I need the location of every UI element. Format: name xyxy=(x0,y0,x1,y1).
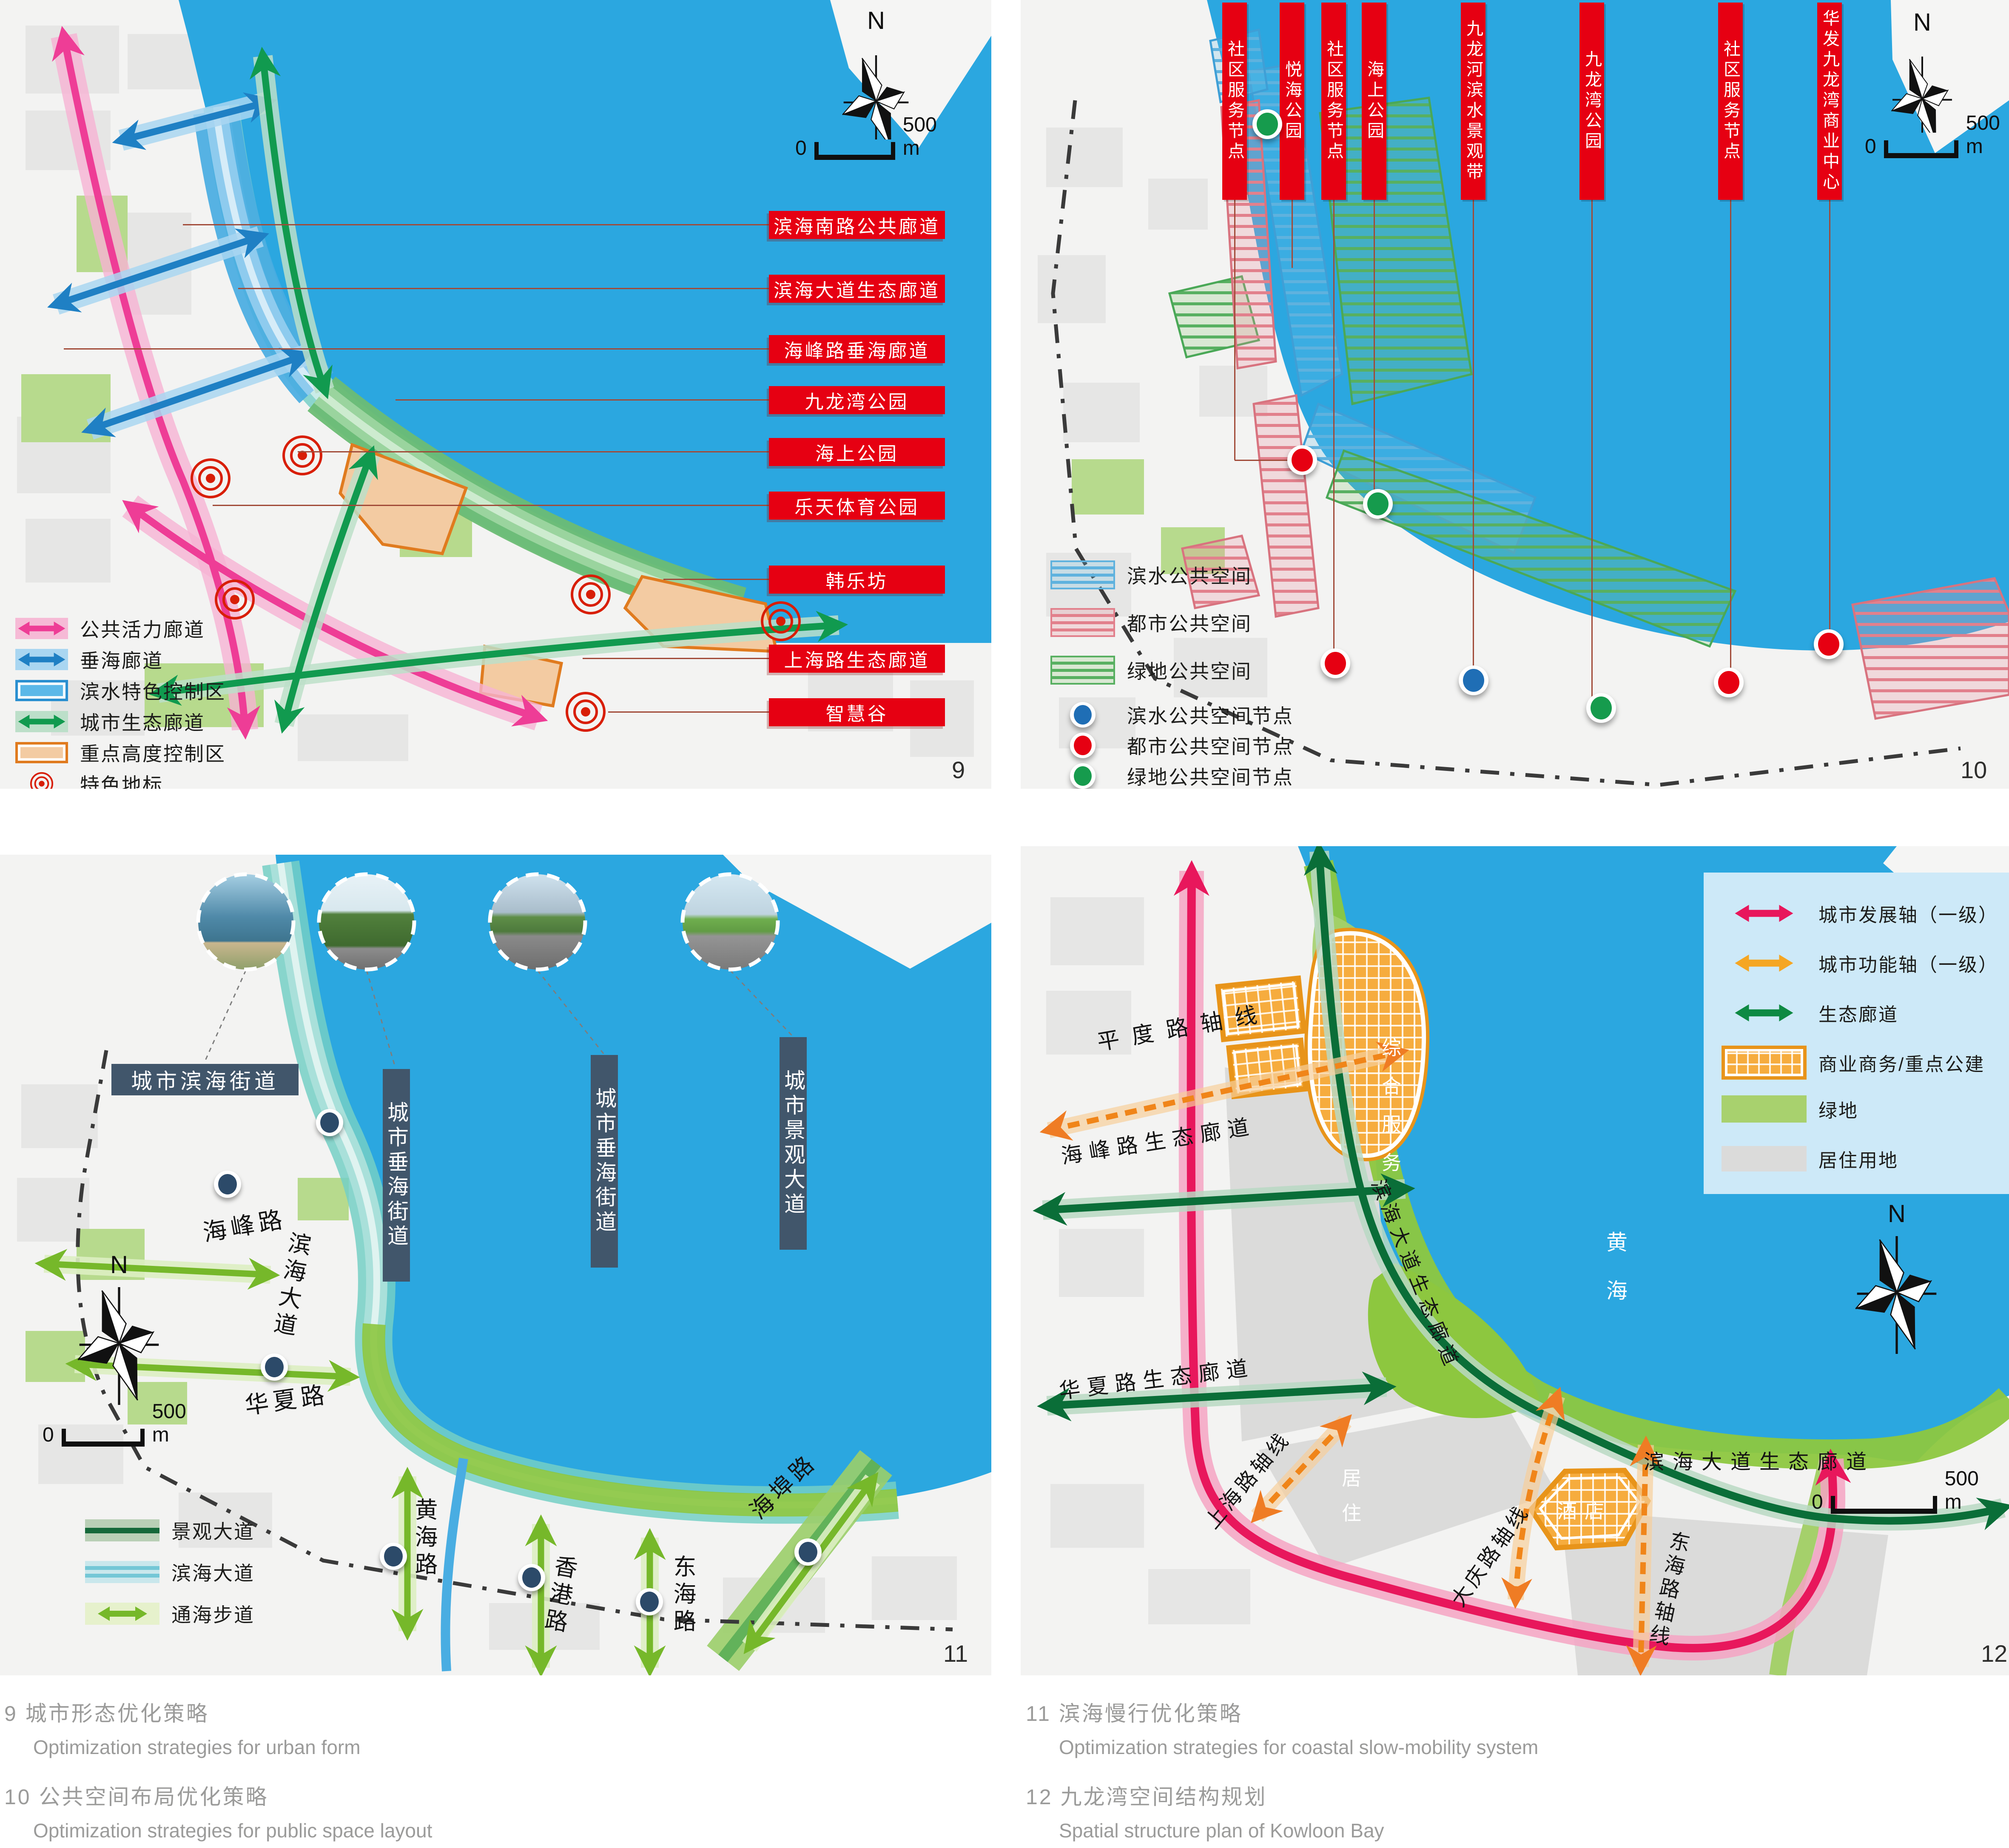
scale-line xyxy=(1884,142,1958,158)
scale-bar: 0 500 m xyxy=(43,1400,196,1447)
legend-item: 滨水特色控制区 xyxy=(15,677,226,705)
public-space-node-red xyxy=(1320,648,1350,678)
legend-item: 通海步道 xyxy=(85,1600,255,1628)
caption-title: 10 公共空间布局优化策略 xyxy=(4,1780,269,1811)
area-name-label: 黄海 xyxy=(1600,1231,1631,1328)
avenue-line xyxy=(85,1528,159,1533)
legend-node-swatch xyxy=(1050,702,1115,728)
compass-north-label: N xyxy=(1888,1202,1906,1226)
legend-area-swatch xyxy=(1050,608,1115,637)
street-type-label: 城市垂海街道 xyxy=(591,1055,618,1268)
road-name-label: 东海路 xyxy=(666,1555,700,1636)
legend-arrow-icon xyxy=(15,649,68,670)
service-bar-label: 九龙河滨水景观带 xyxy=(1461,3,1485,200)
callout-leader xyxy=(183,224,769,225)
map-callout: 智慧谷 xyxy=(769,698,945,726)
area-name-label: 酒店 xyxy=(1557,1496,1612,1524)
bar-leader xyxy=(1292,200,1293,268)
street-type-label: 城市滨海街道 xyxy=(111,1064,299,1095)
compass-north-label: N xyxy=(1913,10,1931,35)
walk-node-dot xyxy=(214,1171,241,1198)
caption-subtitle: Optimization strategies for public space… xyxy=(33,1819,432,1842)
legend-item: 滨海大道 xyxy=(85,1558,255,1586)
bar-leader xyxy=(1829,200,1830,644)
legend-item: 公共活力廊道 xyxy=(15,614,205,643)
service-bar-label: 社区服务节点 xyxy=(1321,3,1346,200)
legend-zone-icon xyxy=(1722,1095,1807,1123)
legend-label: 滨水特色控制区 xyxy=(80,677,226,705)
callout-leader xyxy=(583,658,769,659)
legend-node-swatch xyxy=(1050,763,1115,789)
legend-item: 绿地公共空间 xyxy=(1050,656,1252,685)
legend-item: 都市公共空间节点 xyxy=(1050,731,1294,759)
legend-label: 生态廊道 xyxy=(1818,999,1898,1026)
service-bar-label: 海上公园 xyxy=(1362,3,1386,200)
legend-item: 商业商务/重点公建 xyxy=(1722,1046,1985,1080)
photo-coastal-street xyxy=(198,874,293,969)
public-space-node-green xyxy=(1252,109,1282,139)
legend-label: 绿地公共空间节点 xyxy=(1127,762,1294,789)
caption-title: 12 九龙湾空间结构规划 xyxy=(1026,1780,1267,1811)
walk-node-dot xyxy=(261,1353,288,1381)
area-name-label: 居住 xyxy=(1336,1468,1364,1538)
map-panel-11: 城市滨海街道城市垂海街道城市垂海街道城市景观大道海峰路滨海大道华夏路黄海路香港路… xyxy=(0,855,991,1675)
legend-arrow-icon xyxy=(15,711,68,732)
legend-node-dot xyxy=(1070,763,1096,789)
photo-sea-facing-street xyxy=(490,874,585,969)
scale-zero: 0 xyxy=(795,136,807,160)
road-name-label: 黄海路 xyxy=(407,1498,441,1579)
map-callout: 上海路生态廊道 xyxy=(769,645,945,673)
legend-node-dot xyxy=(1070,733,1096,758)
callout-leader xyxy=(213,505,769,506)
caption-title: 9 城市形态优化策略 xyxy=(4,1697,209,1727)
legend-label: 通海步道 xyxy=(171,1600,255,1628)
walk-node-dot xyxy=(794,1538,822,1566)
legend-label: 特色地标 xyxy=(80,770,163,789)
map-panel-12: 平度路轴线海峰路生态廊道华夏路生态廊道上海路轴线大庆路轴线东海路轴线滨海大道生态… xyxy=(1021,846,2009,1675)
walk-node-dot xyxy=(380,1543,407,1570)
legend-zone-icon xyxy=(1722,1046,1807,1080)
legend-arrow-icon xyxy=(1722,946,1807,980)
service-bar-label: 九龙湾公园 xyxy=(1579,3,1604,200)
caption-number: 10 xyxy=(4,1785,31,1809)
walk-node-dot xyxy=(518,1564,545,1591)
scale-distance: 500 m xyxy=(1966,111,2005,158)
legend-item: 城市生态廊道 xyxy=(15,708,205,736)
legend-label: 垂海廊道 xyxy=(80,645,163,674)
legend-label: 居住用地 xyxy=(1818,1145,1898,1172)
callout-leader xyxy=(396,399,769,401)
legend-label: 城市功能轴（一级） xyxy=(1818,950,1998,977)
public-space-node-blue xyxy=(1459,665,1488,695)
legend-item: 生态廊道 xyxy=(1722,996,1898,1030)
legend-arrow-icon xyxy=(1722,896,1807,930)
legend-target-icon xyxy=(15,773,68,789)
public-space-node-green xyxy=(1363,489,1393,519)
callout-leader xyxy=(238,288,769,289)
walk-node-dot xyxy=(316,1109,343,1136)
panel-number: 9 xyxy=(952,756,965,784)
service-bar-label: 悦海公园 xyxy=(1280,3,1304,200)
map-panel-10: 社区服务节点悦海公园社区服务节点海上公园九龙河滨水景观带九龙湾公园社区服务节点华… xyxy=(1021,0,2009,789)
scale-zero: 0 xyxy=(1865,135,1876,158)
legend-zone-icon xyxy=(15,680,68,701)
map-callout: 滨海南路公共廊道 xyxy=(769,211,945,239)
bar-leader xyxy=(1374,200,1375,504)
legend-item: 景观大道 xyxy=(85,1516,255,1544)
panel-number: 10 xyxy=(1961,756,1987,784)
caption-subtitle: Spatial structure plan of Kowloon Bay xyxy=(1059,1819,1384,1842)
service-bar-label: 社区服务节点 xyxy=(1222,3,1247,200)
legend-node-swatch xyxy=(1050,732,1115,759)
legend-label: 滨水公共空间 xyxy=(1127,561,1252,589)
legend-item: 城市功能轴（一级） xyxy=(1722,946,1998,980)
legend-zone-icon xyxy=(15,742,68,763)
caption-number: 9 xyxy=(4,1702,18,1726)
street-type-label: 城市景观大道 xyxy=(780,1037,807,1250)
area-name-label: 综合服务 xyxy=(1376,1038,1404,1191)
legend-avenue-icon xyxy=(85,1519,159,1541)
map-callout: 滨海大道生态廊道 xyxy=(769,275,945,303)
scale-distance: 500 m xyxy=(903,113,944,160)
scale-line xyxy=(62,1430,145,1447)
scale-zero: 0 xyxy=(1812,1490,1823,1514)
compass: N xyxy=(1841,1202,1952,1354)
map-callout: 韩乐坊 xyxy=(769,566,945,594)
legend-arrow-icon xyxy=(15,618,68,639)
scale-bar: 0 500 m xyxy=(1865,111,2005,158)
panel-number: 12 xyxy=(1981,1640,2007,1667)
legend-item: 绿地 xyxy=(1722,1095,1858,1123)
bar-leader xyxy=(1234,200,1235,460)
legend-item: 重点高度控制区 xyxy=(15,739,226,767)
photo-tree-lined-street xyxy=(319,874,414,969)
map-callout: 乐天体育公园 xyxy=(769,492,945,520)
legend-node-dot xyxy=(1070,702,1096,728)
public-space-node-green xyxy=(1586,693,1616,723)
caption-title: 11 滨海慢行优化策略 xyxy=(1026,1697,1243,1727)
bar-leader xyxy=(1730,200,1731,682)
map-callout: 九龙湾公园 xyxy=(769,386,945,414)
figure-page: 滨海南路公共廊道滨海大道生态廊道海峰路垂海廊道九龙湾公园海上公园乐天体育公园韩乐… xyxy=(0,0,2009,1848)
compass-north-label: N xyxy=(867,9,885,33)
legend-item: 都市公共空间 xyxy=(1050,608,1252,637)
callout-leader xyxy=(608,711,769,713)
caption-subtitle: Optimization strategies for coastal slow… xyxy=(1059,1736,1538,1759)
coastal-line xyxy=(85,1566,159,1570)
bar-leader xyxy=(1333,200,1335,663)
service-bar-label: 社区服务节点 xyxy=(1718,3,1743,200)
legend-label: 城市发展轴（一级） xyxy=(1818,900,1998,927)
public-space-node-red xyxy=(1714,668,1744,697)
legend-label: 都市公共空间节点 xyxy=(1127,731,1294,759)
legend-item: 绿地公共空间节点 xyxy=(1050,762,1294,789)
callout-leader xyxy=(663,579,769,580)
legend-label: 景观大道 xyxy=(171,1516,255,1544)
legend-item: 城市发展轴（一级） xyxy=(1722,896,1998,930)
scale-line xyxy=(1831,1498,1937,1514)
bar-leader xyxy=(1591,200,1593,708)
service-bar-label: 华发九龙湾商业中心 xyxy=(1817,3,1842,200)
compass-north-label: N xyxy=(110,1253,128,1277)
callout-leader xyxy=(64,348,769,350)
scale-bar: 0 500 m xyxy=(795,113,944,160)
photo-landscape-avenue xyxy=(683,874,778,969)
scale-line xyxy=(814,144,895,160)
legend-arrow-icon xyxy=(1722,996,1807,1030)
scale-distance: 500 m xyxy=(152,1400,196,1447)
walk-node-dot xyxy=(636,1588,663,1615)
legend-label: 重点高度控制区 xyxy=(80,739,226,767)
legend-area-swatch xyxy=(1050,560,1115,589)
caption-number: 11 xyxy=(1026,1702,1051,1726)
caption-subtitle: Optimization strategies for urban form xyxy=(33,1736,361,1759)
legend-item: 垂海廊道 xyxy=(15,645,163,674)
legend-label: 公共活力廊道 xyxy=(80,614,205,643)
caption-number: 12 xyxy=(1026,1785,1053,1809)
legend-item: 滨水公共空间 xyxy=(1050,560,1252,589)
public-space-node-red xyxy=(1814,629,1844,659)
legend-label: 绿地 xyxy=(1818,1095,1858,1123)
callout-leader xyxy=(298,451,769,452)
legend-zone-icon xyxy=(1722,1146,1807,1171)
public-space-node-red xyxy=(1287,445,1317,475)
legend-label: 滨海大道 xyxy=(171,1558,255,1586)
legend-label: 滨水公共空间节点 xyxy=(1127,701,1294,729)
legend-label: 都市公共空间 xyxy=(1127,608,1252,637)
legend-walk-icon xyxy=(85,1603,159,1625)
legend-label: 绿地公共空间 xyxy=(1127,656,1252,684)
legend-item: 特色地标 xyxy=(15,770,163,789)
legend-item: 居住用地 xyxy=(1722,1145,1898,1172)
scale-distance: 500 m xyxy=(1945,1467,1995,1514)
legend-item: 滨水公共空间节点 xyxy=(1050,701,1294,729)
scale-zero: 0 xyxy=(43,1423,54,1447)
coastal-line xyxy=(85,1574,159,1578)
map-panel-9: 滨海南路公共廊道滨海大道生态廊道海峰路垂海廊道九龙湾公园海上公园乐天体育公园韩乐… xyxy=(0,0,991,789)
map-callout: 海上公园 xyxy=(769,438,945,466)
legend-coastal-icon xyxy=(85,1561,159,1583)
bar-leader xyxy=(1473,200,1474,680)
panel-number: 11 xyxy=(943,1640,968,1667)
legend-label: 商业商务/重点公建 xyxy=(1818,1049,1985,1076)
compass: N xyxy=(64,1253,174,1405)
legend-area-swatch xyxy=(1050,656,1115,685)
map-callout: 海峰路垂海廊道 xyxy=(769,335,945,363)
street-type-label: 城市垂海街道 xyxy=(383,1069,410,1282)
scale-bar: 0 500 m xyxy=(1812,1467,1995,1514)
legend-label: 城市生态廊道 xyxy=(80,708,205,736)
